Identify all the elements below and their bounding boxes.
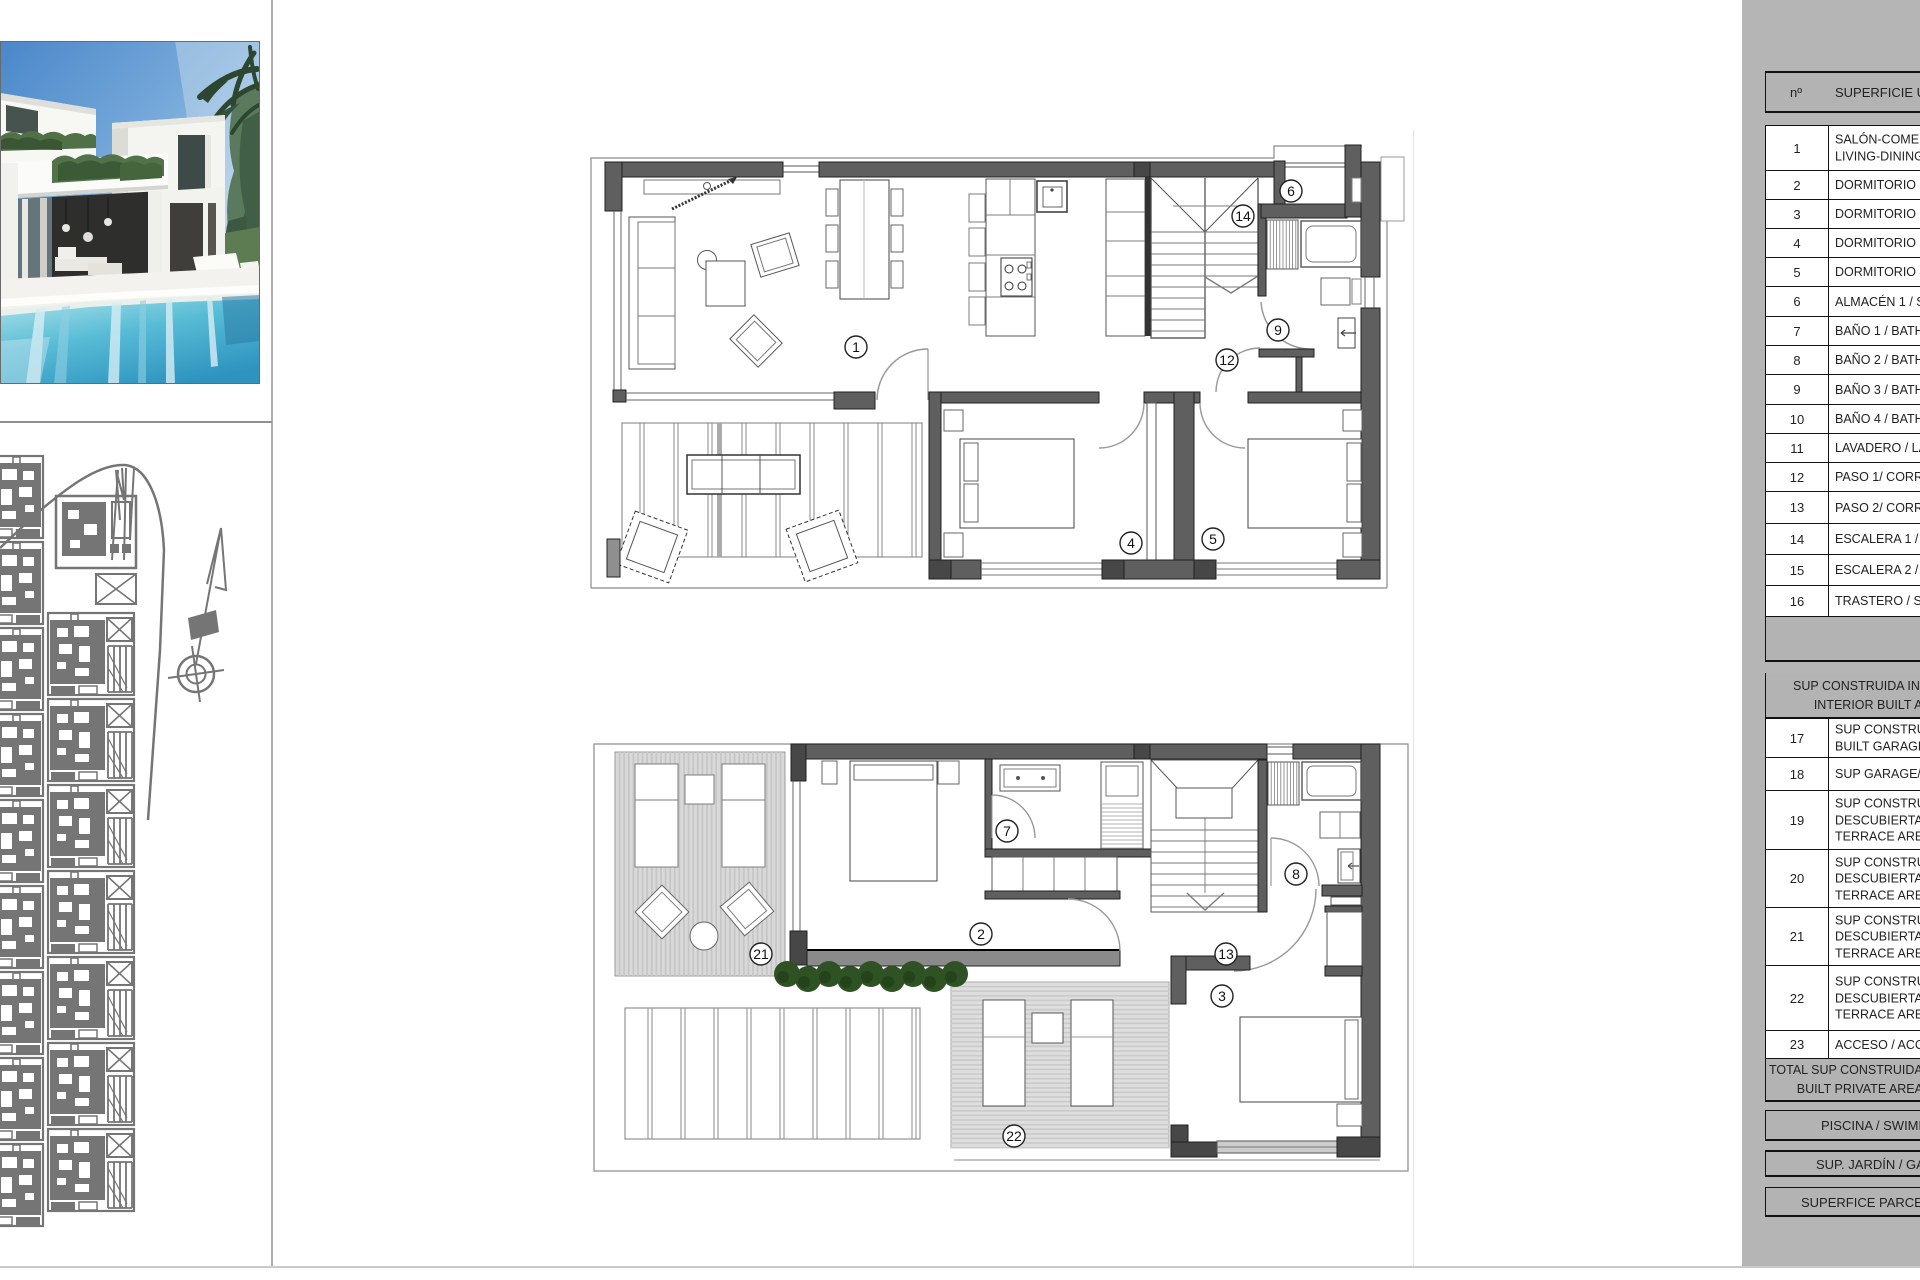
svg-text:2: 2 <box>977 926 985 942</box>
svg-text:22: 22 <box>1006 1128 1022 1144</box>
svg-text:13: 13 <box>1218 946 1234 962</box>
svg-text:3: 3 <box>1218 988 1226 1004</box>
svg-text:21: 21 <box>753 946 769 962</box>
svg-text:7: 7 <box>1003 823 1011 839</box>
svg-text:1: 1 <box>852 339 860 355</box>
svg-text:12: 12 <box>1219 352 1235 368</box>
svg-text:9: 9 <box>1274 322 1282 338</box>
svg-text:8: 8 <box>1292 866 1300 882</box>
svg-text:14: 14 <box>1235 208 1251 224</box>
svg-text:6: 6 <box>1287 183 1295 199</box>
svg-text:4: 4 <box>1127 535 1135 551</box>
svg-text:5: 5 <box>1209 531 1217 547</box>
